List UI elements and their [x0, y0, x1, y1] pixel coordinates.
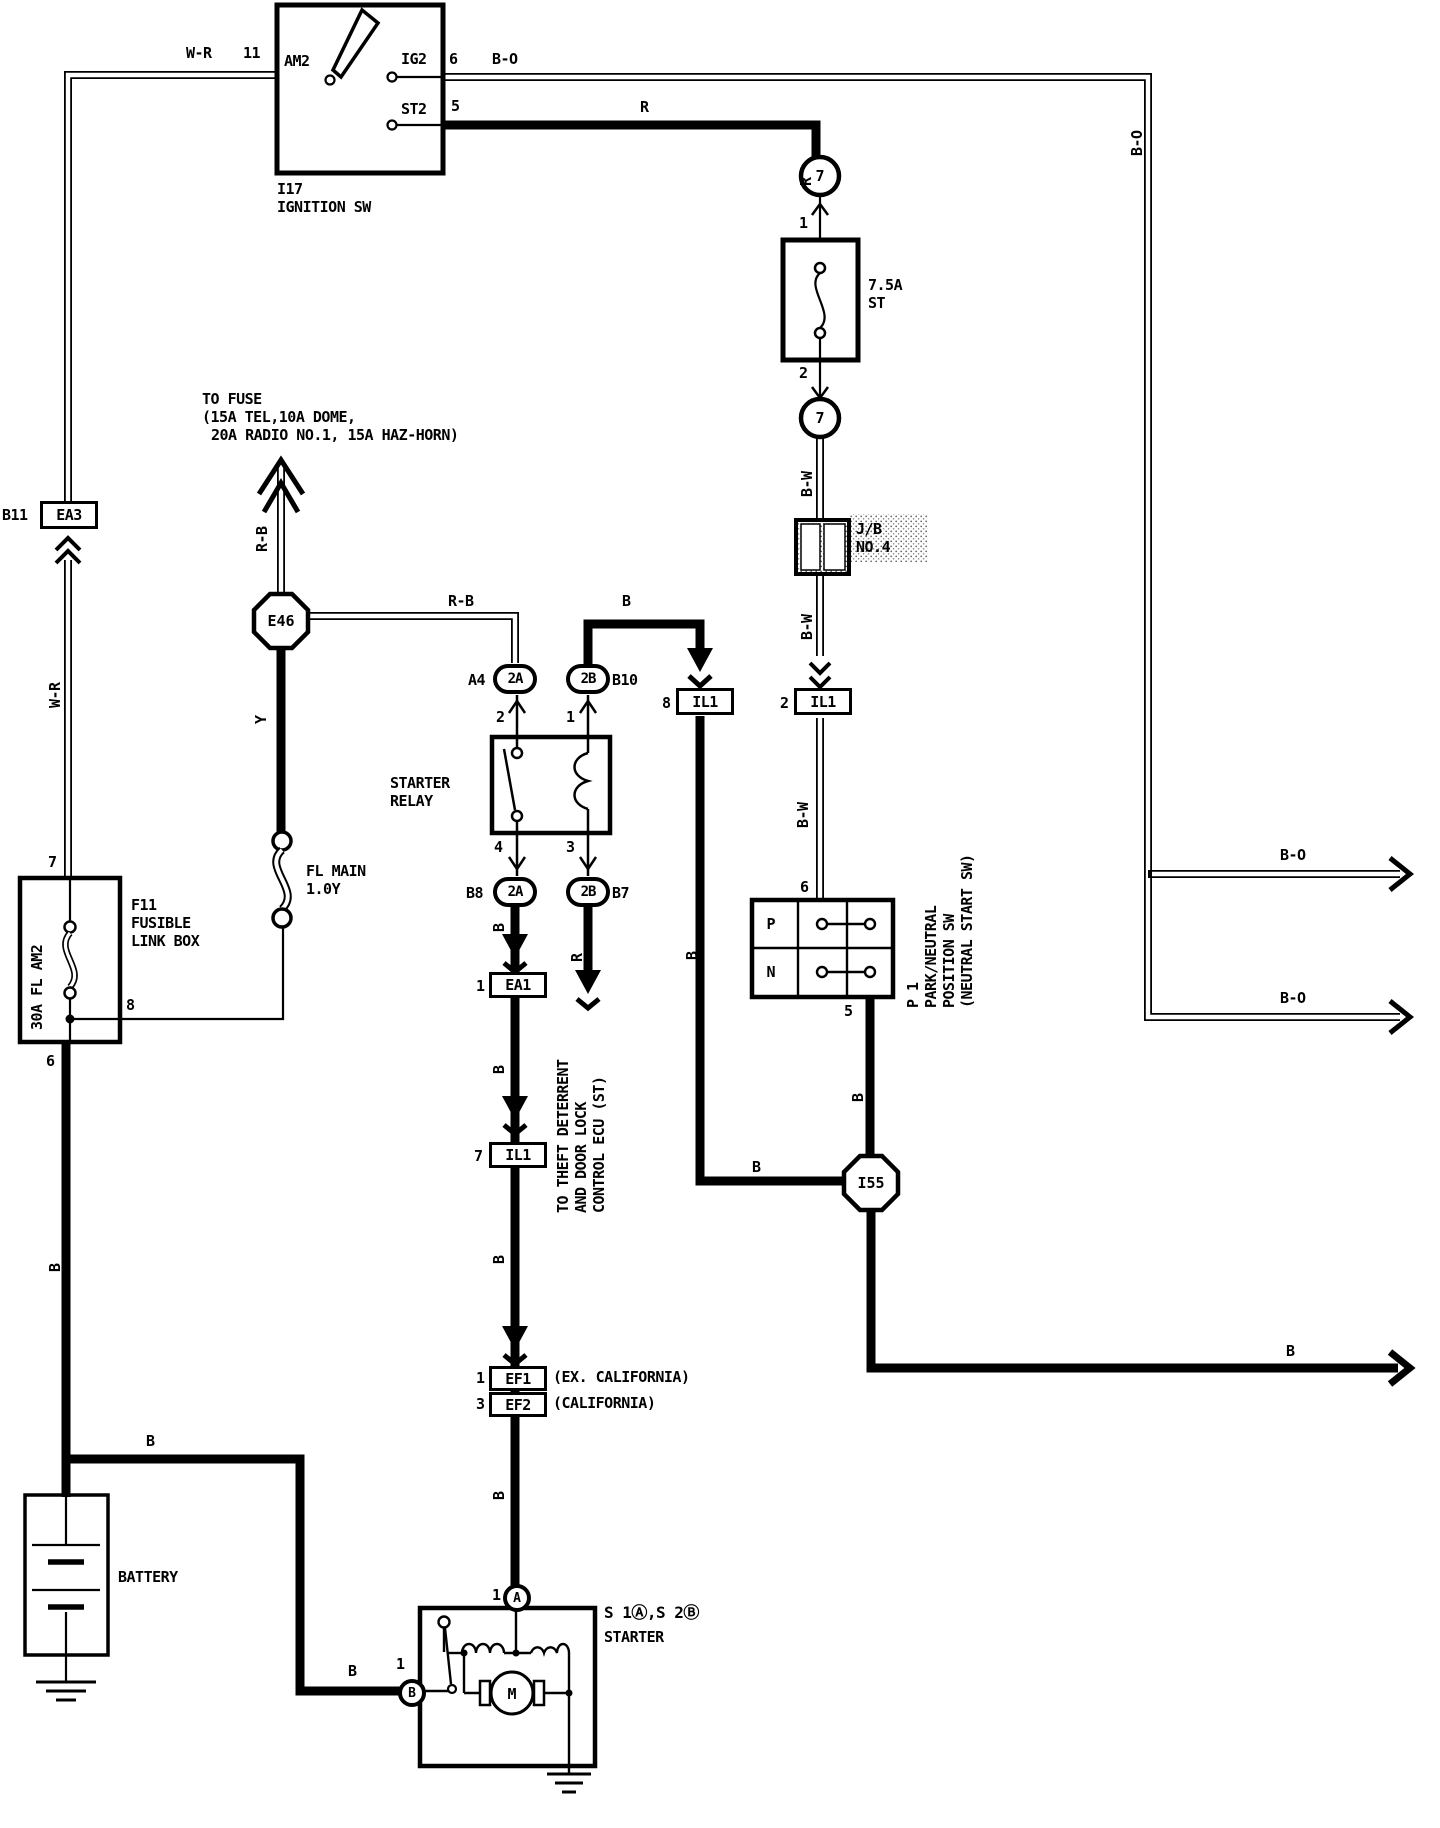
- pin-label: 2: [799, 364, 808, 382]
- connector-box-il1: IL1: [489, 1142, 547, 1168]
- pin-label: B11: [2, 506, 28, 524]
- f11-label: LINK BOX: [131, 932, 199, 950]
- fuse-amp: 7.5A: [868, 276, 902, 294]
- terminal-ig2: IG2: [401, 50, 427, 68]
- junction-block-label: J/B: [856, 520, 882, 538]
- fl-main-label: 1.0Y: [306, 880, 340, 898]
- wire-label-r: R: [797, 177, 815, 186]
- connector-ref-b7: B7: [612, 884, 629, 902]
- fl-main-link: [273, 832, 291, 927]
- wire-label-b: B: [683, 951, 701, 960]
- wire-label-b: B: [348, 1662, 357, 1680]
- wire-label-bo: B-O: [492, 50, 518, 68]
- wire-label-bw: B-W: [798, 614, 816, 640]
- wire-label-b: B: [622, 592, 631, 610]
- relay-label: STARTER: [390, 774, 450, 792]
- fuse-name: ST: [868, 294, 885, 312]
- wire-label-b: B: [1286, 1342, 1295, 1360]
- flow-arrows: [56, 460, 1410, 1384]
- relay-label: RELAY: [390, 792, 433, 810]
- ignition-code: I17: [277, 180, 303, 198]
- terminal-a-circle: A: [503, 1584, 531, 1612]
- pin-label: 7: [48, 853, 57, 871]
- wire-label-b: B: [490, 923, 508, 932]
- pin-label: 8: [126, 996, 135, 1014]
- wire-label-b: B: [490, 1255, 508, 1264]
- pin-label: 1: [476, 977, 485, 995]
- i55-label: I55: [857, 1174, 884, 1192]
- ecu-note: TO THEFT DETERRENT AND DOOR LOCK CONTROL…: [554, 1059, 608, 1213]
- connector-ref-b8: B8: [466, 884, 483, 902]
- wire-label-rb: R-B: [448, 592, 474, 610]
- connector-oval-2b: 2B: [566, 664, 610, 694]
- pin-label: 8: [662, 694, 671, 712]
- to-fuse-note: (15A TEL,10A DOME,: [202, 408, 356, 426]
- pin-label: 5: [451, 97, 460, 115]
- wire-label-bw: B-W: [798, 471, 816, 497]
- connector-oval-2a: 2A: [493, 664, 537, 694]
- pin-label: 7: [474, 1147, 483, 1165]
- wire-label-b: B: [752, 1158, 761, 1176]
- connector-box-ea1: EA1: [489, 972, 547, 998]
- pin-label: 2: [496, 708, 505, 726]
- wire-label-b: B: [146, 1432, 155, 1450]
- wire-label-bw: B-W: [794, 802, 812, 828]
- wire-label-r: R: [640, 98, 649, 116]
- motor-label: M: [507, 1685, 516, 1703]
- terminal-am2: AM2: [284, 52, 310, 70]
- connector-box-il1: IL1: [676, 688, 734, 715]
- pin-label: 1: [799, 214, 808, 232]
- wire-label-wr: W-R: [46, 682, 64, 708]
- pn-p-label: P: [766, 915, 775, 933]
- wiring-diagram: W-R 11 AM2 IG2 6 ST2 5 I17 IGNITION SW B…: [0, 0, 1440, 1828]
- f11-label: FUSIBLE: [131, 914, 191, 932]
- pin-label: 3: [476, 1395, 485, 1413]
- ef2-note: (CALIFORNIA): [553, 1394, 655, 1412]
- thick-wires: [66, 125, 1398, 1691]
- to-fuse-note: TO FUSE: [202, 390, 262, 408]
- connector-oval-2b: 2B: [566, 877, 610, 907]
- pin-label: 6: [46, 1052, 55, 1070]
- connector-oval-2a: 2A: [493, 877, 537, 907]
- wire-label-wr: W-R: [186, 44, 212, 62]
- f11-code: F11: [131, 896, 157, 914]
- connector-ref-a4: A4: [468, 671, 485, 689]
- ignition-name: IGNITION SW: [277, 198, 371, 216]
- pin-label: 5: [844, 1002, 853, 1020]
- wire-label-rb: R-B: [253, 526, 271, 552]
- wire-label-b: B: [46, 1263, 64, 1272]
- park-neutral-label: P 1 PARK/NEUTRAL POSITION SW (NEUTRAL ST…: [904, 854, 976, 1008]
- pin-label: 6: [449, 50, 458, 68]
- component-outlines: [20, 5, 893, 1766]
- connector-box-ea3: EA3: [40, 501, 98, 529]
- starter-terminals-note: S 1Ⓐ,S 2Ⓑ: [604, 1604, 699, 1622]
- pin-label: 6: [800, 878, 809, 896]
- connector-ref-b10: B10: [612, 671, 638, 689]
- connector-7-label: 7: [815, 409, 824, 427]
- ef1-note: (EX. CALIFORNIA): [553, 1368, 690, 1386]
- pin-label: 1: [396, 1655, 405, 1673]
- to-fuse-note: 20A RADIO NO.1, 15A HAZ-HORN): [211, 426, 458, 444]
- wire-label-y: Y: [252, 715, 270, 724]
- terminal-st2: ST2: [401, 100, 427, 118]
- wire-label-b: B: [490, 1065, 508, 1074]
- wiring-layer: [0, 0, 1440, 1828]
- wire-label-bo: B-O: [1128, 130, 1146, 156]
- wire-label-r: R: [568, 953, 586, 962]
- wire-label-bo: B-O: [1280, 989, 1306, 1007]
- junction-block-label: NO.4: [856, 538, 890, 556]
- connector-box-ef2: EF2: [489, 1392, 547, 1417]
- wire-label-bo: B-O: [1280, 846, 1306, 864]
- pin-label: 4: [494, 838, 503, 856]
- fl-main-label: FL MAIN: [306, 862, 366, 880]
- connector-box-ef1: EF1: [489, 1366, 547, 1391]
- fusible-link-rating: 30A FL AM2: [28, 945, 46, 1030]
- wire-label-b: B: [490, 1491, 508, 1500]
- f11-internals: [65, 878, 284, 1042]
- starter-label: STARTER: [604, 1628, 664, 1646]
- wire-label-b: B: [849, 1093, 867, 1102]
- pin-label: 2: [780, 694, 789, 712]
- pin-label: 11: [243, 44, 260, 62]
- connector-7-label: 7: [815, 167, 824, 185]
- connector-box-il1: IL1: [794, 688, 852, 715]
- pn-n-label: N: [766, 963, 775, 981]
- battery-internals: [32, 1495, 100, 1700]
- pin-label: 1: [566, 708, 575, 726]
- e46-label: E46: [267, 612, 294, 630]
- pin-label: 1: [492, 1586, 501, 1604]
- terminal-b-circle: B: [398, 1679, 426, 1707]
- pin-label: 3: [566, 838, 575, 856]
- battery-label: BATTERY: [118, 1568, 178, 1586]
- pin-label: 1: [476, 1369, 485, 1387]
